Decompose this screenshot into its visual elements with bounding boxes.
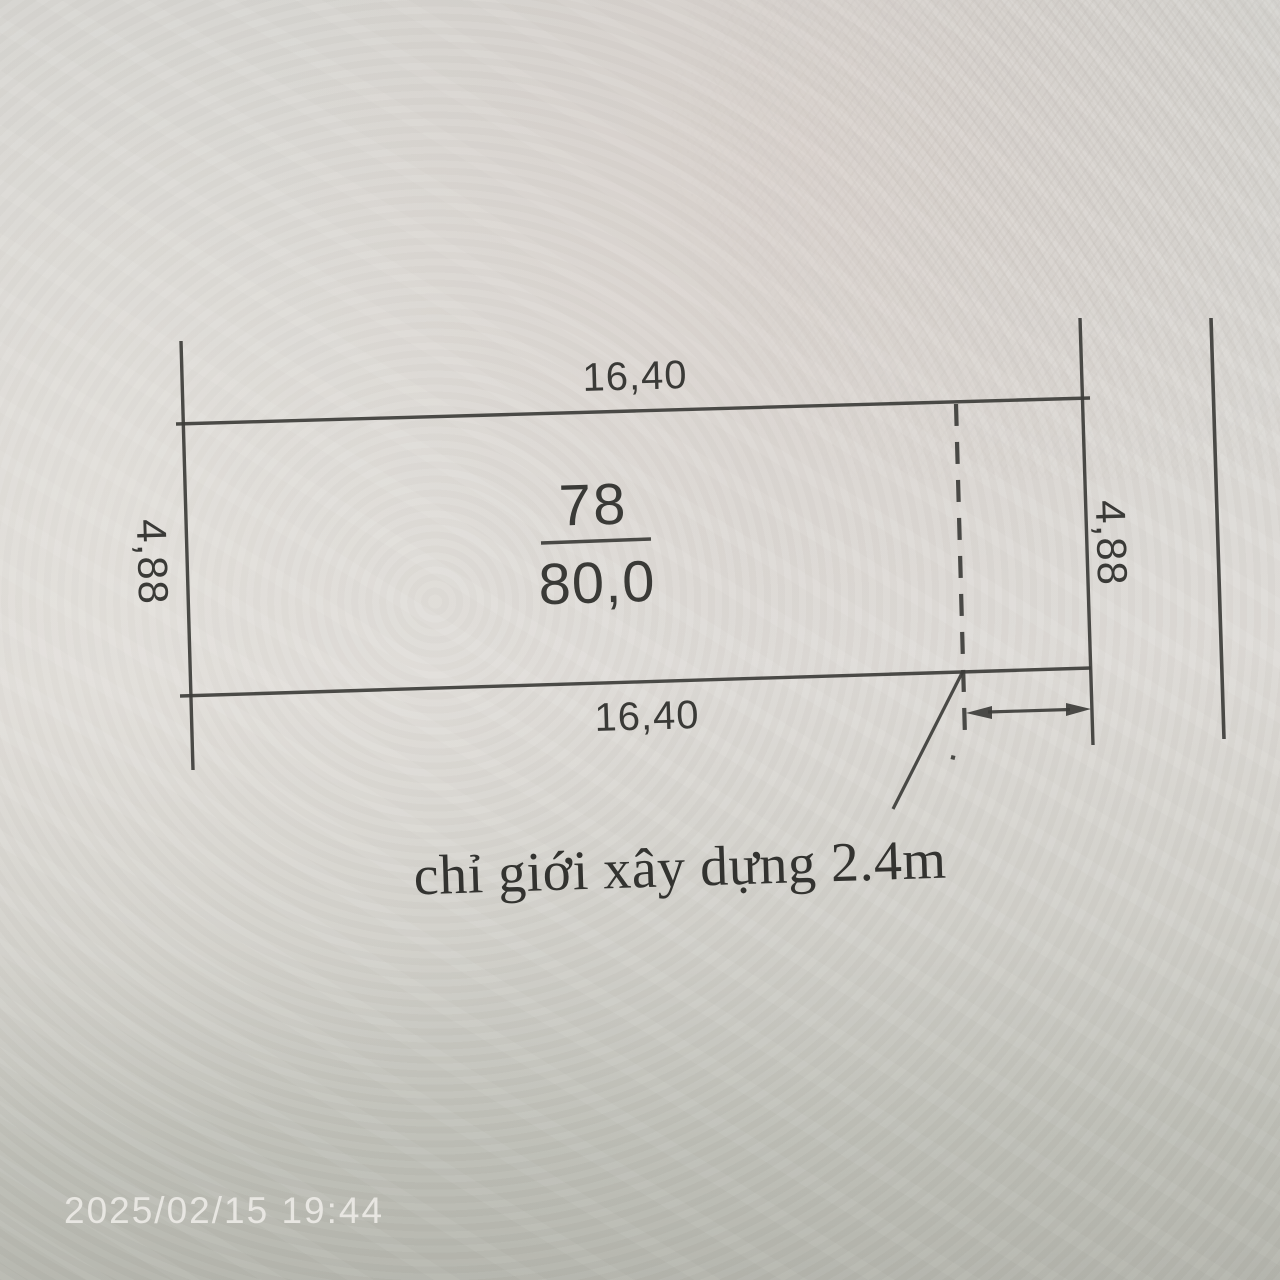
annotation-leader-line — [893, 671, 963, 809]
parcel-area-label: 80,0 — [538, 548, 657, 618]
photo-timestamp-label: 2025/02/15 19:44 — [64, 1190, 384, 1232]
dashed-line-dot — [951, 757, 955, 758]
plot-left-boundary-line — [181, 341, 193, 770]
plot-drawing-svg — [0, 0, 1280, 1280]
plot-top-edge-line — [176, 398, 1090, 424]
road-edge-line — [1211, 318, 1224, 739]
dimension-bottom-label: 16,40 — [594, 693, 700, 741]
dimension-left-label: 4,88 — [127, 518, 178, 605]
parcel-fraction-bar — [541, 539, 651, 543]
dimension-right-label: 4,88 — [1086, 499, 1137, 586]
parcel-number-label: 78 — [558, 470, 628, 539]
setback-dimension-arrow-line — [988, 710, 1070, 713]
plot-bottom-edge-line — [180, 668, 1091, 696]
setback-dashed-line — [956, 404, 965, 737]
setback-arrowhead-right — [1066, 703, 1091, 716]
setback-arrowhead-left — [966, 706, 992, 719]
photographed-land-plot-drawing: 16,40 78 80,0 16,40 4,88 4,88 chỉ giới x… — [0, 0, 1280, 1280]
dimension-top-label: 16,40 — [582, 353, 688, 401]
